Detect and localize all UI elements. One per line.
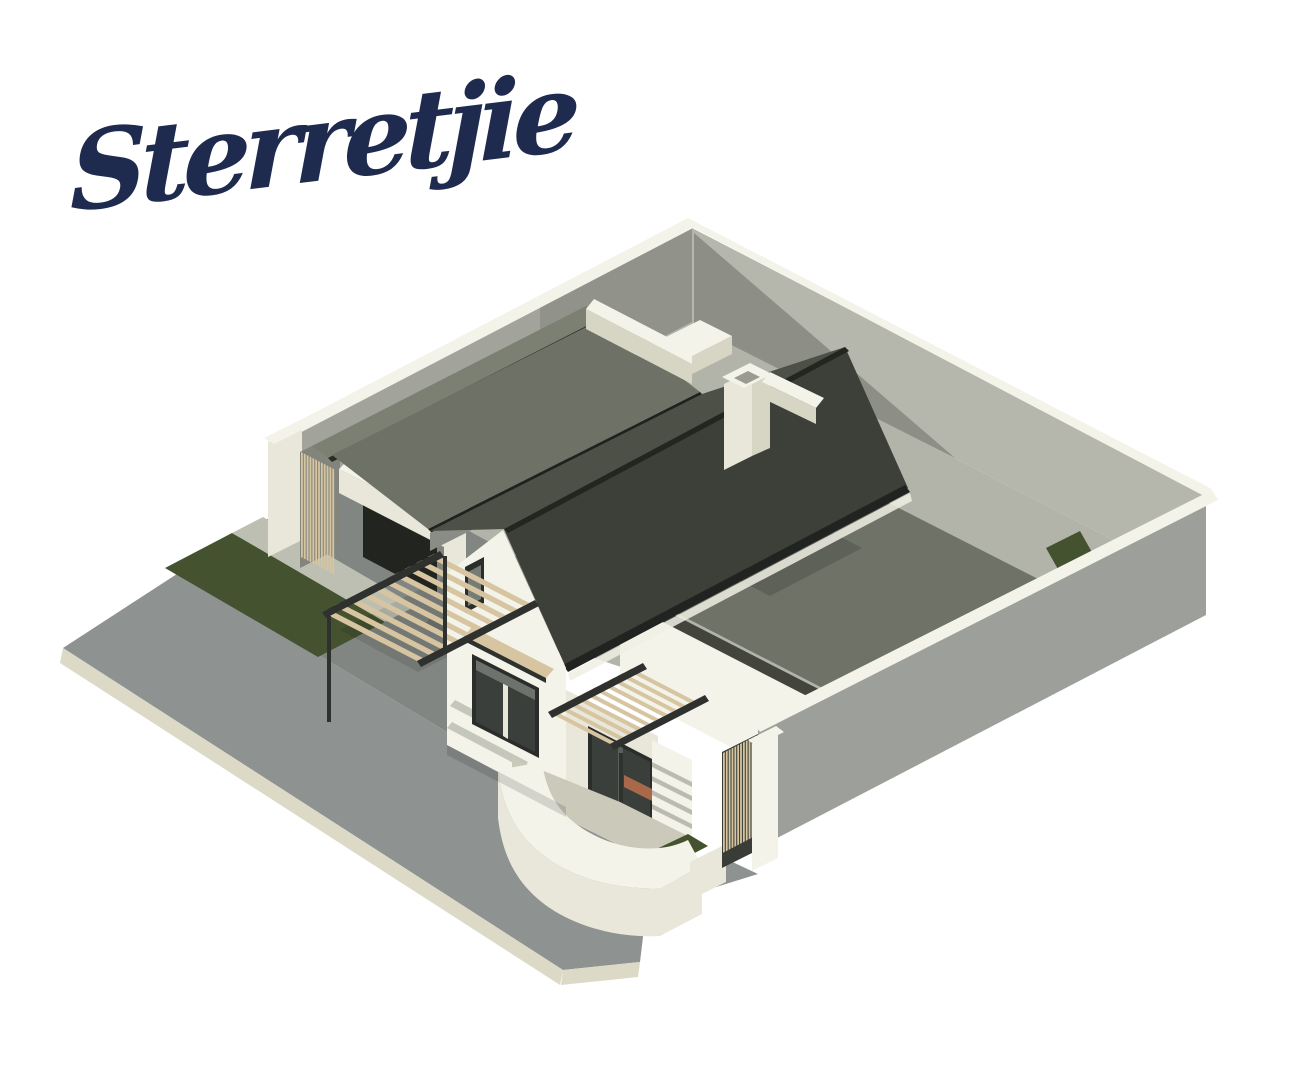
steel-post bbox=[327, 616, 331, 722]
front-gate bbox=[722, 726, 784, 871]
architectural-rendering bbox=[0, 0, 1289, 1080]
steel-post bbox=[443, 556, 447, 654]
gate-pier-face bbox=[752, 731, 778, 871]
west-wall-face bbox=[268, 425, 302, 557]
